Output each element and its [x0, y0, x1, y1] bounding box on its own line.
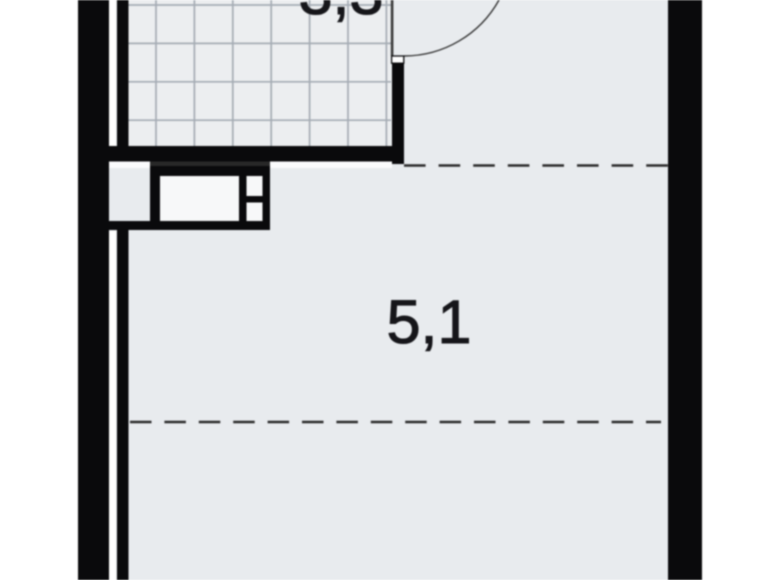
- svg-text:3,3: 3,3: [299, 0, 384, 27]
- svg-text:5,1: 5,1: [387, 288, 472, 356]
